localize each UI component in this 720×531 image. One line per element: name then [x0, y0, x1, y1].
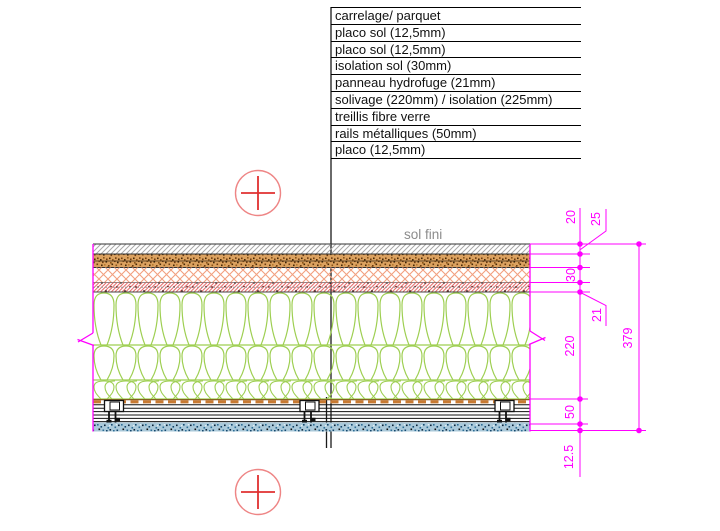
dim-21: 21 [590, 293, 604, 337]
dim-25: 25 [589, 197, 603, 241]
left-break-icon [78, 333, 95, 346]
dim-220: 220 [563, 324, 577, 368]
target-symbol-bottom [236, 470, 281, 515]
target-cross-icon [241, 176, 275, 210]
target-symbol-top [236, 171, 281, 216]
layer-isolation-sol [93, 268, 530, 283]
right-break-icon [529, 331, 546, 345]
target-cross-icon [241, 475, 275, 509]
layer-solivage-isolation [93, 292, 530, 399]
legend-row-hydrofuge: panneau hydrofuge (21mm) [331, 74, 581, 91]
legend-row-placo: placo (12,5mm) [331, 141, 581, 158]
dim-30: 30 [564, 253, 578, 297]
legend-row-placo-sol-1: placo sol (12,5mm) [331, 24, 581, 41]
legend-row-solivage: solivage (220mm) / isolation (225mm) [331, 91, 581, 108]
dim-12-5: 12.5 [562, 435, 576, 479]
legend-row-carrelage: carrelage/ parquet [331, 7, 581, 24]
layer-panneau-hydrofuge [93, 283, 530, 293]
legend-row-treillis: treillis fibre verre [331, 108, 581, 125]
rail-clip [300, 401, 319, 424]
rail-clip [495, 401, 514, 424]
floor-section-drawing: carrelage/ parquet placo sol (12,5mm) pl… [0, 0, 720, 531]
legend-row-rails: rails métalliques (50mm) [331, 125, 581, 142]
layer-placo-sol-double [93, 255, 530, 268]
layer-placo-bottom [93, 423, 530, 432]
layer-legend: carrelage/ parquet placo sol (12,5mm) pl… [331, 7, 581, 159]
legend-row-placo-sol-2: placo sol (12,5mm) [331, 41, 581, 58]
dim-379-total: 379 [621, 316, 635, 360]
legend-row-isolation: isolation sol (30mm) [331, 57, 581, 74]
rail-clip [105, 401, 124, 424]
layer-carrelage-parquet [93, 244, 530, 254]
dim-50: 50 [563, 390, 577, 434]
dim-20: 20 [564, 195, 578, 239]
sol-fini-label: sol fini [404, 227, 442, 242]
